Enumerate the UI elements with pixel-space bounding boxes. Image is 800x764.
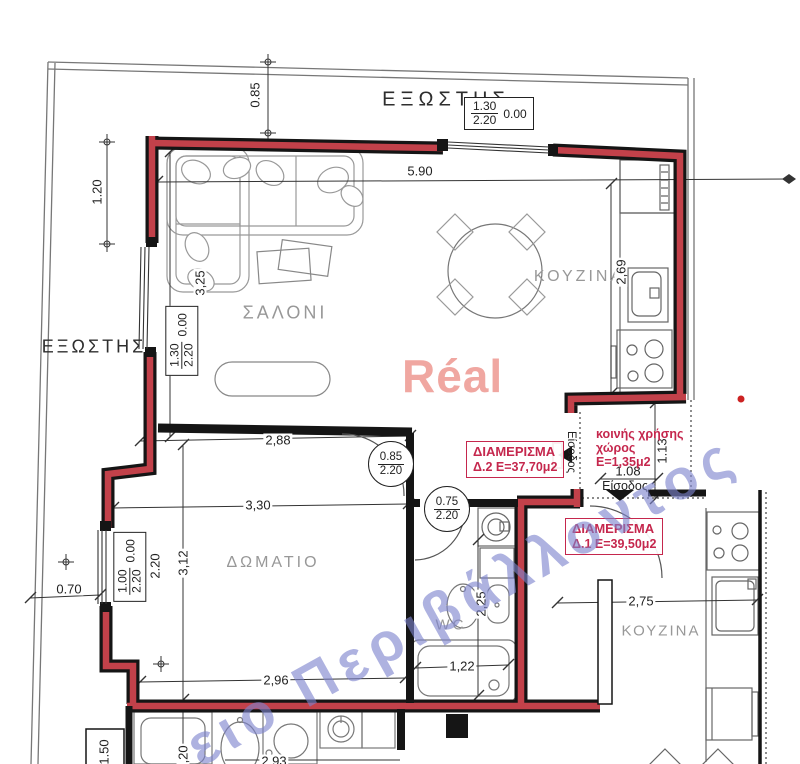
door-tag-wc: 0.752.20 — [424, 486, 470, 532]
door-living-num: 0.85 — [378, 451, 404, 465]
dim-bottom-293: 2,93 — [259, 755, 288, 764]
dim-bedroom-height: 3,12 — [177, 548, 190, 577]
dimension-diamond-end — [782, 174, 796, 184]
dim-wc-length: 2,25 — [475, 589, 488, 618]
tag-top-den: 2.20 — [473, 114, 496, 127]
apartment-d2-info: Δ.2 Ε=37,70μ2 — [473, 460, 557, 475]
dim-bottom-220: 2,20 — [177, 743, 190, 764]
apartment-d1-info: Δ.1 Ε=39,50μ2 — [572, 537, 656, 552]
dim-bedroom-width-top: 3,30 — [243, 499, 272, 512]
door-wc-num: 0.75 — [434, 496, 460, 510]
apartment-box-d2: ΔΙΑΜΕΡΙΣΜΑ Δ.2 Ε=37,70μ2 — [466, 441, 564, 478]
dimension-ticks — [25, 146, 763, 705]
dim-balcony-depth: 0.85 — [249, 80, 262, 109]
tag-left-den: 2.20 — [183, 344, 196, 367]
common-area-line3: Ε=1,35μ2 — [596, 455, 683, 469]
dim-balcony-070: 0.70 — [54, 583, 83, 596]
door-living-den: 2.20 — [380, 465, 402, 478]
tag-window-num: 1.00 — [116, 568, 130, 595]
dim-bathtub: 1,22 — [447, 660, 476, 673]
dim-bottom-150: 1.50 — [98, 737, 111, 764]
room-label-wc: WC — [436, 617, 467, 634]
dim-bedroom-width-bottom: 2,96 — [261, 674, 290, 687]
common-area-line2: χώρος — [596, 441, 683, 455]
dim-balcony-left-width: 1.20 — [91, 177, 104, 206]
dim-kitchen-bottom-width: 2,75 — [626, 595, 655, 608]
apartment-d1-title: ΔΙΑΜΕΡΙΣΜΑ — [572, 521, 656, 537]
tag-top-num: 1.30 — [471, 100, 498, 114]
interior-walls — [86, 428, 760, 764]
dim-wall-288: 2,88 — [263, 434, 292, 447]
floor-plan: ΕΞΩΣΤΗΣ ΕΞΩΣΤΗΣ ΣΑΛΟΝΙ ΚΟΥΖΙΝΑ ΔΩΜΑΤΙΟ W… — [0, 0, 800, 764]
dim-living-width: 5.90 — [405, 165, 434, 178]
dim-living-height: 3,25 — [194, 268, 207, 297]
tag-window-den: 2.20 — [131, 570, 144, 593]
room-label-kitchen-bottom: ΚΟΥΖΙΝΑ — [622, 623, 701, 640]
door-wc-den: 2.20 — [436, 510, 458, 523]
room-label-balcony-left: ΕΞΩΣΤΗΣ — [42, 337, 146, 358]
opening-tag-top-window: 1.302.20 0.00 — [464, 97, 534, 130]
entrance-label-d1: Είσοδος — [602, 479, 648, 493]
opening-tag-bedroom-window: 1.002.20 0.00 — [113, 532, 146, 602]
red-dot-marker — [738, 396, 745, 403]
room-label-living: ΣΑΛΟΝΙ — [243, 303, 328, 324]
room-label-bedroom: ΔΩΜΑΤΙΟ — [226, 554, 319, 572]
dim-kitchen-height: 2,69 — [615, 257, 628, 286]
tag-top-sill: 0.00 — [503, 107, 526, 121]
door-tag-living: 0.852.20 — [368, 441, 414, 487]
opening-tag-left-window: 1.302.20 0.00 — [165, 306, 198, 376]
watermark-brand: Réal — [402, 349, 503, 403]
tag-left-num: 1.30 — [168, 342, 182, 369]
column-pillar — [446, 714, 468, 738]
entrance-label-d2: Είσοδος — [565, 431, 577, 473]
apartment-d2-title: ΔΙΑΜΕΡΙΣΜΑ — [473, 444, 557, 460]
room-label-kitchen-top: ΚΟΥΖΙΝΑ — [534, 268, 624, 286]
apartment-box-d1: ΔΙΑΜΕΡΙΣΜΑ Δ.1 Ε=39,50μ2 — [565, 518, 663, 555]
floor-plan-drawing — [0, 0, 800, 764]
tag-window-extra: 2.20 — [149, 551, 162, 580]
common-area-text: κοινής χρήσης χώρος Ε=1,35μ2 — [596, 427, 683, 469]
tag-left-sill: 0.00 — [175, 313, 189, 336]
tag-window-sill: 0.00 — [123, 539, 137, 562]
common-area-line1: κοινής χρήσης — [596, 427, 683, 441]
